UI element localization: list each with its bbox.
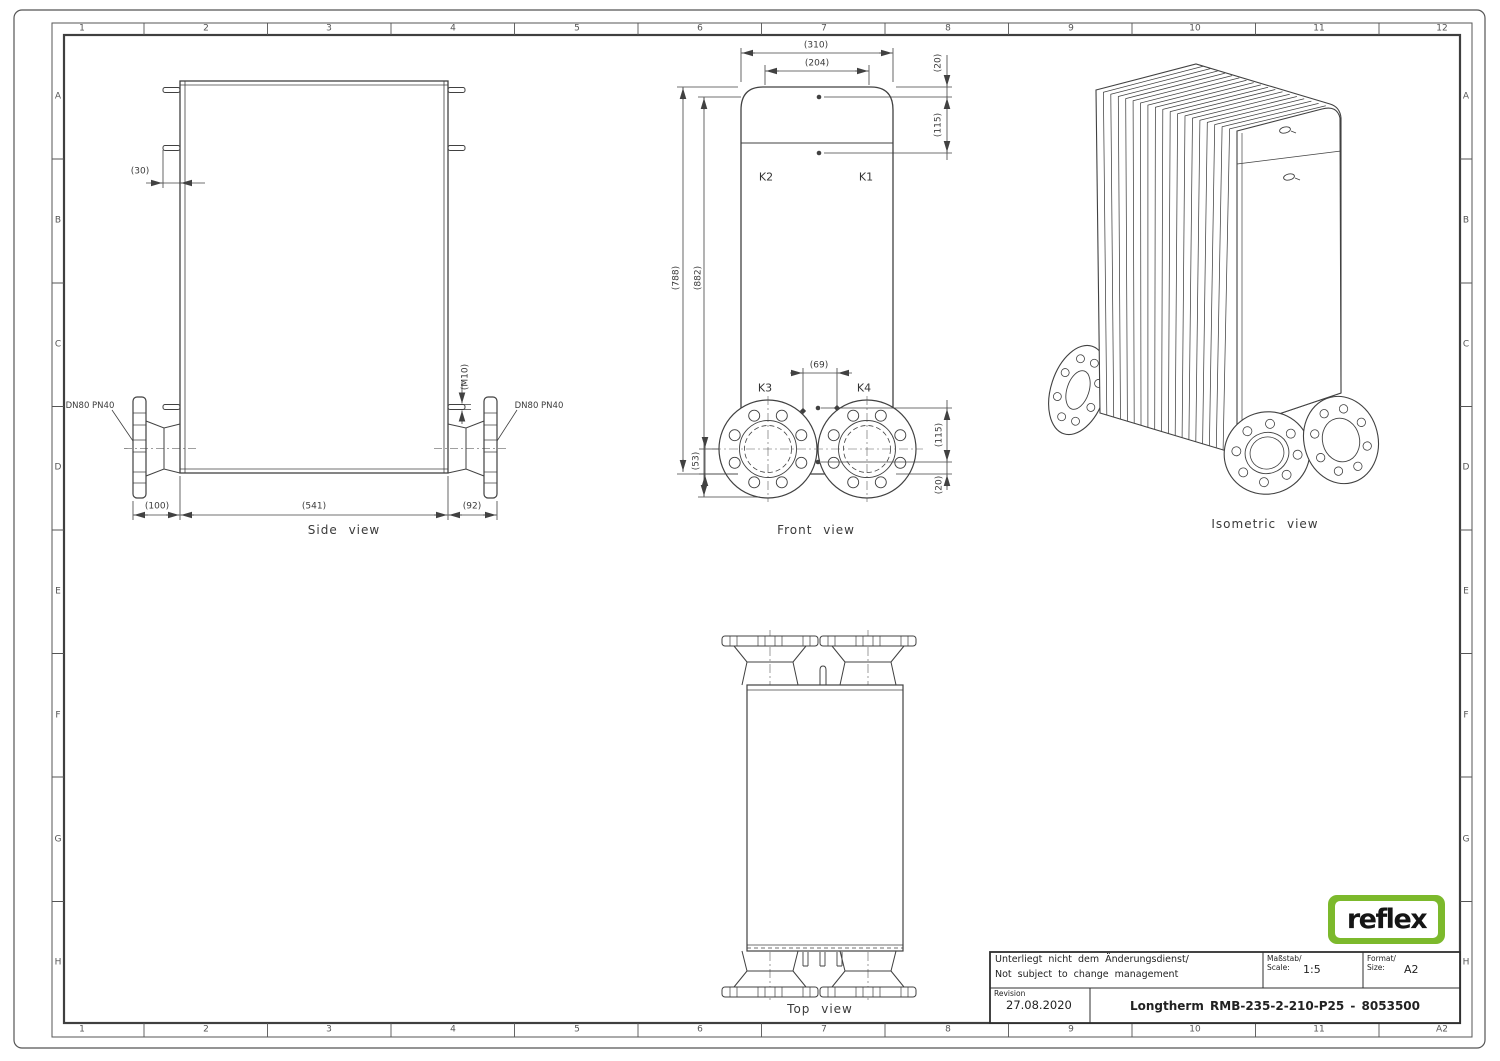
grid-col-label: 10 [1189,1026,1200,1035]
dim-115-bottom: (115) [936,423,945,447]
grid-col-label: 11 [1313,1026,1324,1035]
scale-label-de: Maßstab/ [1267,955,1302,963]
grid-col-label: 6 [697,25,703,34]
port-label-k3: K3 [758,383,772,394]
grid-col-label: 12 [1436,25,1447,34]
dim-788: (788) [673,266,682,290]
grid-row-label: G [1463,836,1470,845]
dim-204: (204) [805,60,829,69]
dim-30: (30) [131,168,149,177]
dim-100: (100) [145,503,169,512]
iso-front-face [1237,108,1341,428]
reflex-logo-text: reflex [1347,904,1426,935]
dim-53: (53) [693,452,702,470]
grid-col-label: 8 [945,25,951,34]
grid-col-label: 2 [203,1026,209,1035]
isometric-view [1038,64,1387,505]
grid-col-label: 8 [945,1026,951,1035]
front-view [677,48,952,502]
dim-20-bottom: (20) [936,476,945,494]
grid-col-label: 1 [79,1026,85,1035]
format-label-de: Format/ [1367,955,1396,963]
scale-label-en: Scale: [1267,964,1290,972]
grid-col-label: 7 [821,1026,827,1035]
grid-row-label: C [1463,341,1469,350]
dim-882: (882) [695,266,704,290]
port-label-k2: K2 [759,172,773,183]
grid-col-label: 11 [1313,25,1324,34]
grid-row-label: F [55,712,60,721]
grid-col-label: 5 [574,25,580,34]
format-label-en: Size: [1367,964,1385,972]
grid-row-label: B [1463,217,1469,226]
flange-spec-left: DN80 PN40 [66,402,115,411]
dim-20-top: (20) [935,54,944,72]
grid-col-label: 3 [326,1026,332,1035]
grid-col-label: 6 [697,1026,703,1035]
top-view [722,630,916,1003]
dim-115-top: (115) [935,113,944,137]
dim-310: (310) [804,42,828,51]
drawing-sheet: 1 2 3 4 5 6 7 8 9 10 11 12 1 2 3 4 5 6 7… [0,0,1500,1061]
grid-row-label: E [55,588,61,597]
reflex-logo: reflex [1328,895,1445,944]
grid-row-label: A [55,93,61,102]
isometric-view-caption: Isometric view [1211,518,1318,530]
revision-label: Revision [994,990,1025,998]
revision-date: 27.08.2020 [1006,1000,1072,1012]
grid-row-label: H [1463,959,1470,968]
grid-col-label: 4 [450,1026,456,1035]
top-nozzles-upper [722,636,916,685]
change-note-en: Not subject to change management [995,970,1178,980]
port-label-k1: K1 [859,172,873,183]
dim-92: (92) [463,503,481,512]
dim-541: (541) [302,503,326,512]
front-view-caption: Front view [777,524,855,536]
flange-spec-right: DN80 PN40 [515,402,564,411]
grid-col-label: 10 [1189,25,1200,34]
grid-col-label: 1 [79,25,85,34]
grid-col-label: 3 [326,25,332,34]
top-view-caption: Top view [787,1003,853,1015]
format-value: A2 [1404,964,1419,975]
side-view-caption: Side view [308,524,380,536]
grid-row-label: F [1463,712,1468,721]
grid-row-label: E [1463,588,1469,597]
grid-row-label: D [1463,464,1470,473]
grid-row-label: D [55,464,62,473]
port-label-k4: K4 [857,383,871,394]
dim-m10: (M10) [462,364,471,390]
dim-69: (69) [810,362,828,371]
grid-row-label: H [55,959,62,968]
grid-col-label: 2 [203,25,209,34]
grid-col-label: 7 [821,25,827,34]
grid-col-label: 9 [1068,25,1074,34]
grid-row-label: A [1463,93,1469,102]
grid-row-label: B [55,217,61,226]
grid-format-label: A2 [1436,1026,1448,1035]
reflex-logo-field: reflex [1335,901,1438,938]
scale-value: 1:5 [1303,964,1321,975]
drawing-title: Longtherm RMB-235-2-210-P25 - 8053500 [1090,1000,1460,1012]
grid-row-label: C [55,341,61,350]
side-view [112,81,517,520]
grid-col-label: 5 [574,1026,580,1035]
grid-row-label: G [55,836,62,845]
top-nozzles-lower [722,951,916,997]
grid-col-label: 9 [1068,1026,1074,1035]
grid-col-label: 4 [450,25,456,34]
change-note-de: Unterliegt nicht dem Änderungsdienst/ [995,955,1189,965]
